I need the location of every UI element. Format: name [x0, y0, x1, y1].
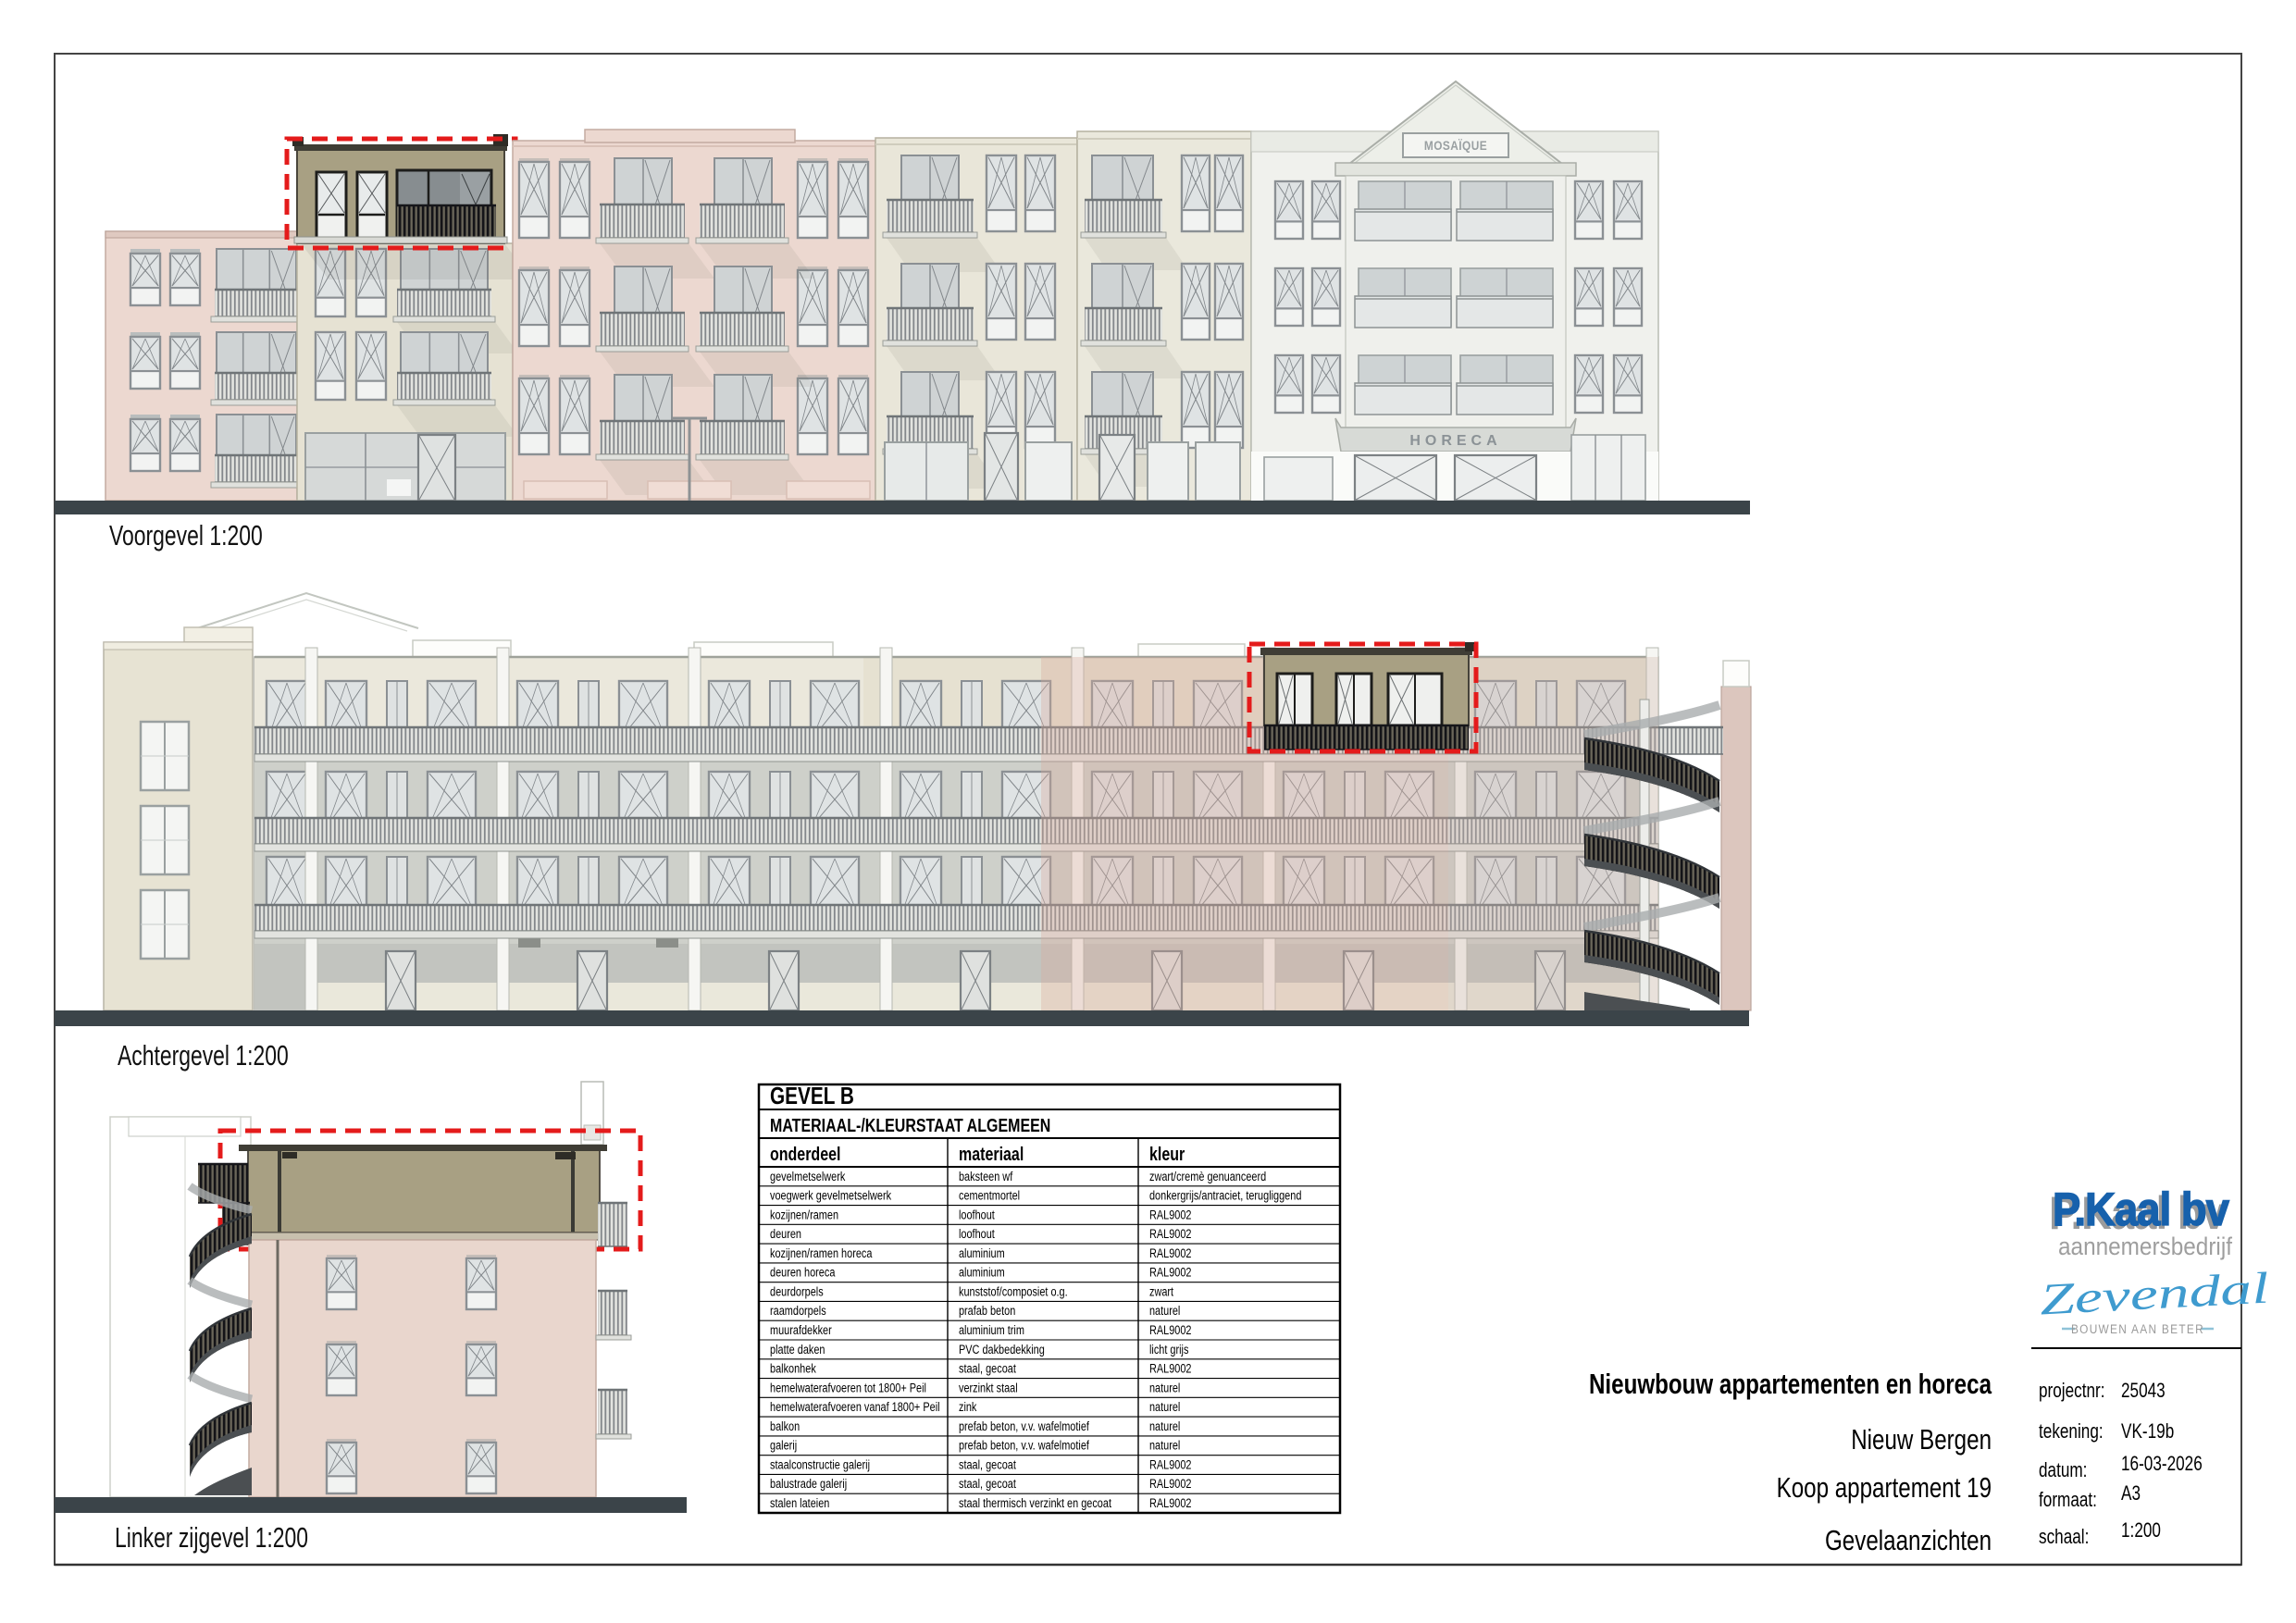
svg-text:naturel: naturel	[1149, 1419, 1180, 1434]
svg-text:balkonhek: balkonhek	[770, 1361, 816, 1376]
svg-text:hemelwaterafvoeren vanaf 1800+: hemelwaterafvoeren vanaf 1800+ Peil	[770, 1400, 940, 1415]
svg-text:cementmortel: cementmortel	[959, 1188, 1020, 1203]
svg-text:VK-19b: VK-19b	[2121, 1420, 2174, 1443]
svg-text:Nieuwbouw appartementen en hor: Nieuwbouw appartementen en horeca	[1589, 1368, 1992, 1400]
svg-text:1:200: 1:200	[2121, 1519, 2161, 1542]
svg-text:naturel: naturel	[1149, 1304, 1180, 1319]
svg-text:BOUWEN AAN BETER: BOUWEN AAN BETER	[2071, 1321, 2204, 1336]
svg-text:staal, gecoat: staal, gecoat	[959, 1477, 1016, 1492]
svg-text:kozijnen/ramen horeca: kozijnen/ramen horeca	[770, 1246, 872, 1261]
svg-text:Koop appartement 19: Koop appartement 19	[1777, 1471, 1992, 1504]
svg-text:formaat:: formaat:	[2039, 1489, 2097, 1512]
svg-text:RAL9002: RAL9002	[1149, 1323, 1192, 1338]
svg-text:aluminium trim: aluminium trim	[959, 1323, 1024, 1338]
svg-text:RAL9002: RAL9002	[1149, 1208, 1192, 1222]
svg-text:gevelmetselwerk: gevelmetselwerk	[770, 1170, 846, 1184]
svg-text:P.Kaal bv: P.Kaal bv	[2053, 1183, 2229, 1235]
svg-text:MATERIAAL-/KLEURSTAAT ALGEMEEN: MATERIAAL-/KLEURSTAAT ALGEMEEN	[770, 1115, 1050, 1135]
svg-text:GEVEL B: GEVEL B	[770, 1083, 854, 1109]
svg-text:kleur: kleur	[1149, 1144, 1185, 1164]
svg-text:donkergrijs/antraciet, terugli: donkergrijs/antraciet, terugliggend	[1149, 1188, 1301, 1203]
svg-text:Zevendal: Zevendal	[2039, 1264, 2270, 1325]
svg-text:aluminium: aluminium	[959, 1265, 1005, 1280]
svg-text:aannemersbedrijf: aannemersbedrijf	[2058, 1233, 2232, 1260]
svg-text:onderdeel: onderdeel	[770, 1144, 840, 1164]
svg-text:PVC dakbedekking: PVC dakbedekking	[959, 1343, 1045, 1357]
svg-text:Linker zijgevel 1:200: Linker zijgevel 1:200	[115, 1521, 308, 1554]
svg-text:projectnr:: projectnr:	[2039, 1380, 2104, 1403]
svg-text:prefab beton, v.v. wafelmotief: prefab beton, v.v. wafelmotief	[959, 1419, 1089, 1434]
svg-text:RAL9002: RAL9002	[1149, 1361, 1192, 1376]
svg-text:prefab beton, v.v. wafelmotief: prefab beton, v.v. wafelmotief	[959, 1438, 1089, 1453]
svg-text:deurdorpels: deurdorpels	[770, 1284, 824, 1299]
svg-text:Gevelaanzichten: Gevelaanzichten	[1825, 1524, 1992, 1556]
svg-text:materiaal: materiaal	[959, 1144, 1024, 1164]
svg-text:staal, gecoat: staal, gecoat	[959, 1361, 1016, 1376]
svg-text:naturel: naturel	[1149, 1381, 1180, 1395]
svg-text:tekening:: tekening:	[2039, 1420, 2104, 1443]
svg-text:verzinkt staal: verzinkt staal	[959, 1381, 1018, 1395]
svg-text:naturel: naturel	[1149, 1400, 1180, 1415]
svg-text:balkon: balkon	[770, 1419, 800, 1434]
svg-text:datum:: datum:	[2039, 1459, 2087, 1482]
svg-text:stalen lateien: stalen lateien	[770, 1496, 829, 1511]
svg-text:galerij: galerij	[770, 1438, 797, 1453]
svg-text:HORECA: HORECA	[1409, 433, 1501, 449]
svg-text:A3: A3	[2121, 1482, 2141, 1505]
svg-text:RAL9002: RAL9002	[1149, 1477, 1192, 1492]
svg-text:16-03-2026: 16-03-2026	[2121, 1453, 2203, 1476]
svg-text:balustrade galerij: balustrade galerij	[770, 1477, 847, 1492]
svg-text:RAL9002: RAL9002	[1149, 1496, 1192, 1511]
svg-text:kunststof/composiet o.g.: kunststof/composiet o.g.	[959, 1284, 1068, 1299]
svg-text:Voorgevel 1:200: Voorgevel 1:200	[109, 519, 263, 551]
svg-text:muurafdekker: muurafdekker	[770, 1323, 832, 1338]
svg-text:prafab beton: prafab beton	[959, 1304, 1015, 1319]
svg-text:zwart: zwart	[1149, 1284, 1174, 1299]
svg-text:kozijnen/ramen: kozijnen/ramen	[770, 1208, 838, 1222]
svg-text:schaal:: schaal:	[2039, 1526, 2089, 1549]
svg-text:MOSAÏQUE: MOSAÏQUE	[1424, 138, 1487, 153]
svg-text:licht grijs: licht grijs	[1149, 1343, 1188, 1357]
svg-text:aluminium: aluminium	[959, 1246, 1005, 1261]
svg-text:staal thermisch verzinkt en ge: staal thermisch verzinkt en gecoat	[959, 1496, 1111, 1511]
svg-text:staalconstructie galerij: staalconstructie galerij	[770, 1457, 870, 1472]
svg-text:Nieuw Bergen: Nieuw Bergen	[1851, 1423, 1992, 1456]
svg-text:voegwerk gevelmetselwerk: voegwerk gevelmetselwerk	[770, 1188, 892, 1203]
svg-text:RAL9002: RAL9002	[1149, 1246, 1192, 1261]
svg-text:deuren horeca: deuren horeca	[770, 1265, 835, 1280]
svg-text:25043: 25043	[2121, 1380, 2166, 1403]
svg-text:zink: zink	[959, 1400, 977, 1415]
svg-text:naturel: naturel	[1149, 1438, 1180, 1453]
svg-text:hemelwaterafvoeren tot 1800+ P: hemelwaterafvoeren tot 1800+ Peil	[770, 1381, 926, 1395]
svg-text:RAL9002: RAL9002	[1149, 1227, 1192, 1242]
svg-text:RAL9002: RAL9002	[1149, 1265, 1192, 1280]
svg-text:loofhout: loofhout	[959, 1227, 995, 1242]
svg-text:zwart/cremè genuanceerd: zwart/cremè genuanceerd	[1149, 1170, 1266, 1184]
svg-text:RAL9002: RAL9002	[1149, 1457, 1192, 1472]
svg-text:platte daken: platte daken	[770, 1343, 825, 1357]
svg-text:baksteen wf: baksteen wf	[959, 1170, 1013, 1184]
svg-text:Achtergevel 1:200: Achtergevel 1:200	[118, 1039, 289, 1072]
svg-text:loofhout: loofhout	[959, 1208, 995, 1222]
svg-text:staal, gecoat: staal, gecoat	[959, 1457, 1016, 1472]
svg-text:deuren: deuren	[770, 1227, 801, 1242]
svg-text:raamdorpels: raamdorpels	[770, 1304, 826, 1319]
